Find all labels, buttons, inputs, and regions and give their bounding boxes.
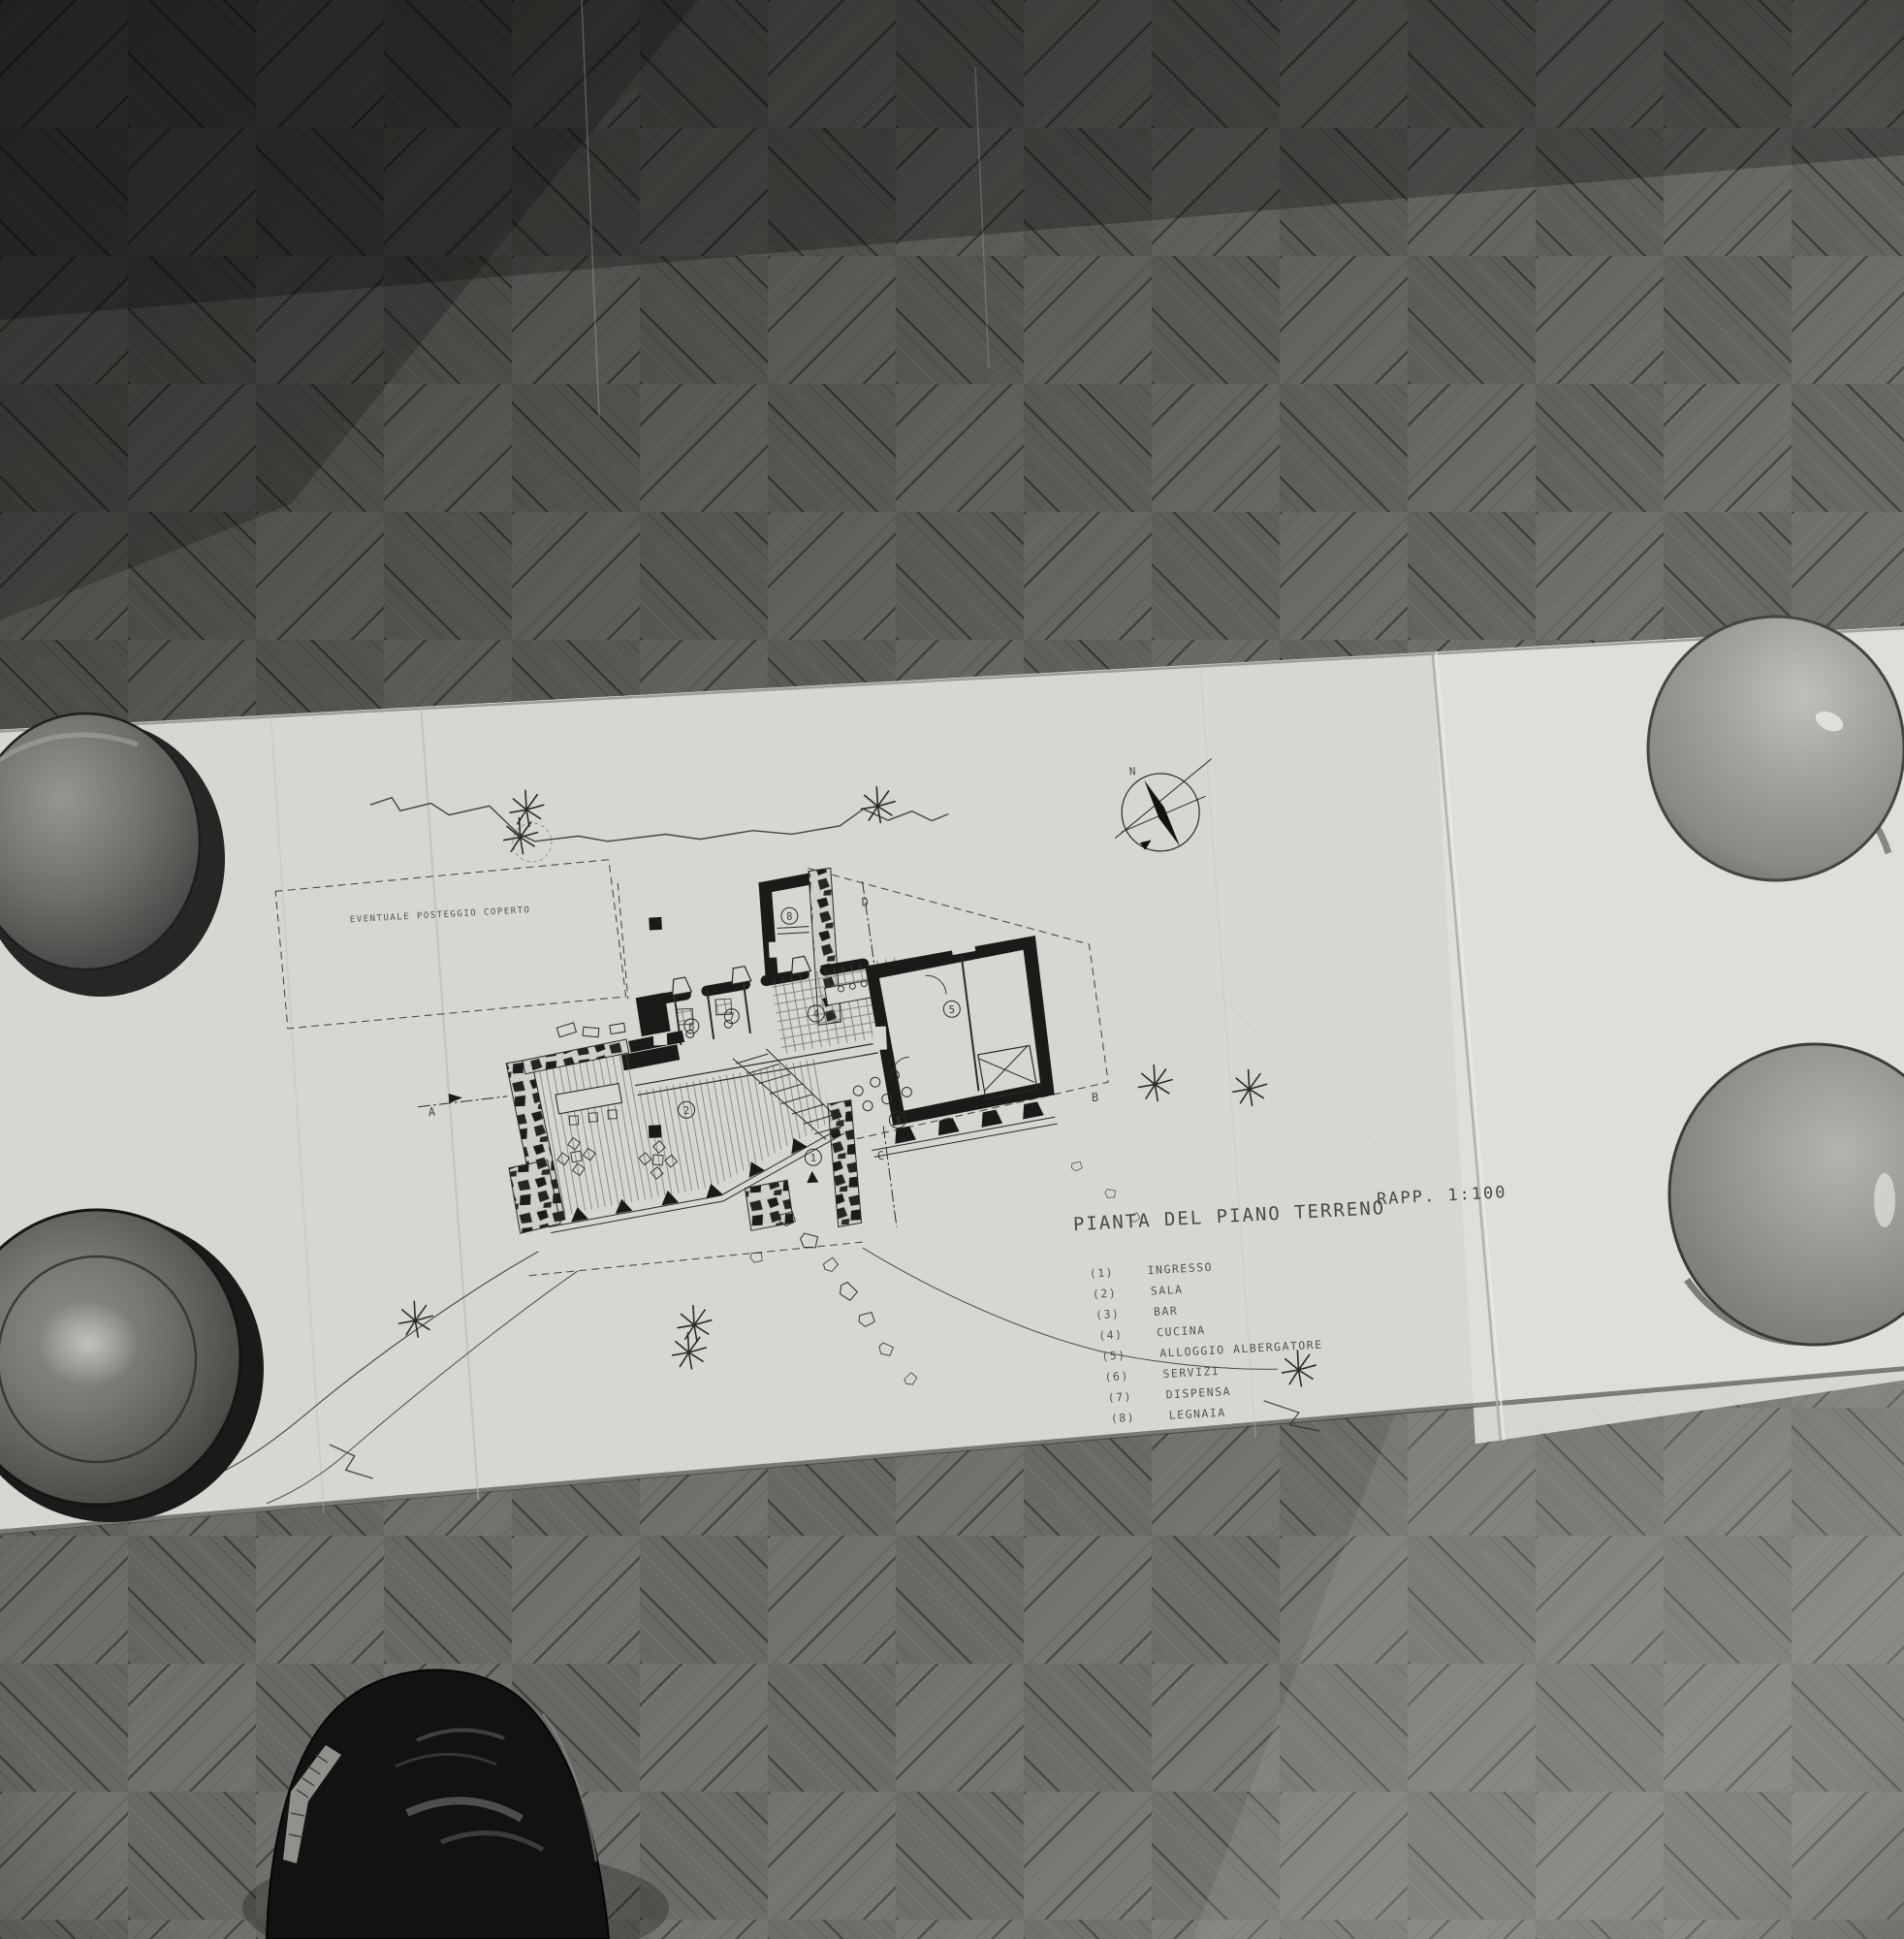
photo-overhead-floorplan: EVENTUALE POSTEGGIO COPERTO A B C D [0, 0, 1904, 1939]
photo-vignette [0, 0, 1904, 1939]
